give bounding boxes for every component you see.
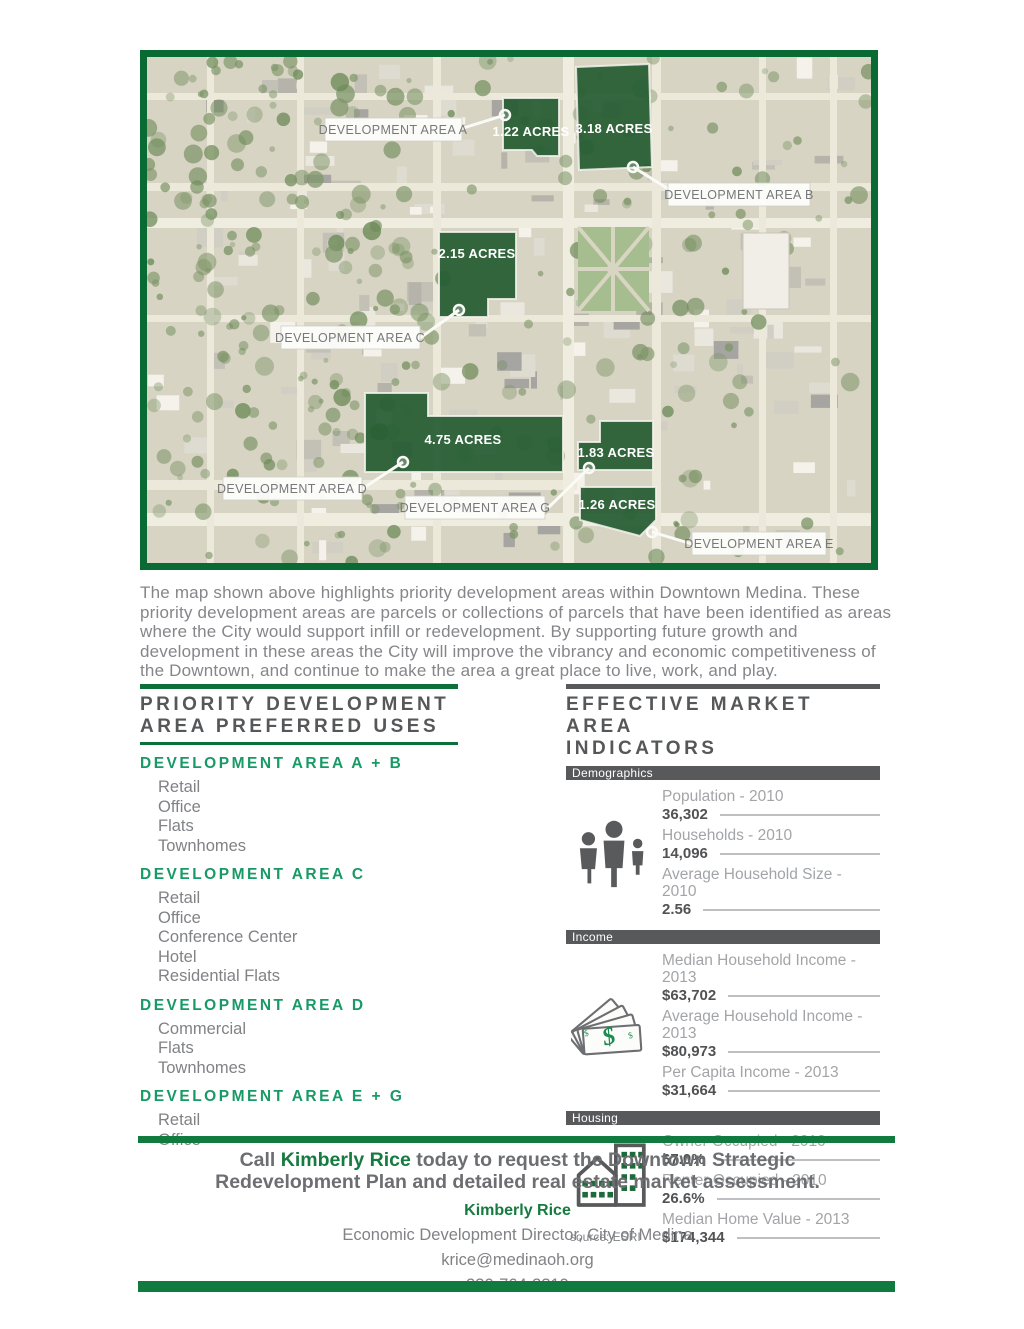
indicator-row: Per Capita Income - 2013 $31,664	[662, 1064, 880, 1099]
callout-area-a: DEVELOPMENT AREA A	[319, 123, 468, 137]
indicator-value: $63,702	[662, 987, 716, 1004]
callout-area-g: DEVELOPMENT AREA G	[400, 501, 551, 515]
callout-area-e: DEVELOPMENT AREA E	[684, 537, 833, 551]
indicator-label: Per Capita Income - 2013	[662, 1064, 880, 1081]
acres-parcel-b: 3.18 ACRES	[576, 121, 653, 136]
left-column-title: PRIORITY DEVELOPMENT AREA PREFERRED USES	[140, 694, 458, 738]
section-bar-demographics: Demographics	[566, 766, 880, 780]
use-item: Flats	[158, 817, 458, 837]
divider	[140, 684, 458, 689]
flyer-page: DEVELOPMENT AREA A DEVELOPMENT AREA B DE…	[0, 0, 1024, 1329]
intro-paragraph: The map shown above highlights priority …	[140, 583, 892, 681]
use-item: Retail	[158, 1111, 458, 1131]
section-heading: DEVELOPMENT AREA A + B	[140, 755, 458, 773]
indicator-value: $31,664	[662, 1082, 716, 1099]
indicators-section-demographics: Demographics	[566, 766, 880, 924]
preferred-uses-column: PRIORITY DEVELOPMENT AREA PREFERRED USES…	[140, 684, 458, 1150]
callout-area-c: DEVELOPMENT AREA C	[275, 331, 425, 345]
use-item: Office	[158, 909, 458, 929]
indicator-row: Population - 2010 36,302	[662, 788, 880, 823]
people-icon	[576, 817, 652, 894]
indicator-label: Average Household Size - 2010	[662, 866, 880, 900]
map-canvas: DEVELOPMENT AREA A DEVELOPMENT AREA B DE…	[147, 57, 871, 563]
indicator-value: $80,973	[662, 1043, 716, 1060]
footer-contact-block: Call Kimberly Rice today to request the …	[140, 1149, 895, 1295]
use-item: Retail	[158, 889, 458, 909]
contact-title: Economic Development Director, City of M…	[140, 1225, 895, 1245]
parcel-b	[576, 64, 652, 170]
contact-name-inline: Kimberly Rice	[281, 1149, 411, 1171]
use-item: Townhomes	[158, 1059, 458, 1079]
indicator-value: 14,096	[662, 845, 708, 862]
indicator-row: Households - 2010 14,096	[662, 827, 880, 862]
acres-parcel-c: 2.15 ACRES	[439, 246, 516, 261]
use-item: Commercial	[158, 1020, 458, 1040]
section-bar-income: Income	[566, 930, 880, 944]
money-icon: $ $ $	[571, 987, 657, 1068]
acres-parcel-g: 1.83 ACRES	[578, 445, 655, 460]
indicator-value: 36,302	[662, 806, 708, 823]
contact-email[interactable]: krice@medinaoh.org	[140, 1250, 895, 1270]
use-item: Residential Flats	[158, 967, 458, 987]
divider	[140, 742, 458, 745]
acres-parcel-d: 4.75 ACRES	[425, 432, 502, 447]
contact-name: Kimberly Rice	[140, 1202, 895, 1220]
use-item: Townhomes	[158, 837, 458, 857]
section-heading: DEVELOPMENT AREA C	[140, 866, 458, 884]
indicator-row: Average Household Size - 2010 2.56	[662, 866, 880, 918]
use-item: Office	[158, 798, 458, 818]
divider	[720, 814, 880, 816]
divider	[703, 909, 880, 911]
indicators-section-income: Income $ $	[566, 930, 880, 1105]
use-item: Conference Center	[158, 928, 458, 948]
indicator-label: Average Household Income - 2013	[662, 1008, 880, 1042]
use-item: Flats	[158, 1039, 458, 1059]
indicator-row: Median Household Income - 2013 $63,702	[662, 952, 880, 1004]
divider	[566, 684, 880, 689]
uses-section-d: DEVELOPMENT AREA D Commercial Flats Town…	[140, 997, 458, 1079]
uses-section-c: DEVELOPMENT AREA C Retail Office Confere…	[140, 866, 458, 987]
callout-area-d: DEVELOPMENT AREA D	[217, 482, 367, 496]
callout-area-b: DEVELOPMENT AREA B	[664, 188, 813, 202]
call-to-action: Call Kimberly Rice today to request the …	[168, 1149, 868, 1193]
divider	[728, 1090, 880, 1092]
use-item: Retail	[158, 778, 458, 798]
acres-parcel-a: 1.22 ACRES	[493, 124, 570, 139]
right-column-title: EFFECTIVE MARKET AREA INDICATORS	[566, 694, 880, 760]
indicator-label: Households - 2010	[662, 827, 880, 844]
indicator-row: Average Household Income - 2013 $80,973	[662, 1008, 880, 1060]
development-areas-map: DEVELOPMENT AREA A DEVELOPMENT AREA B DE…	[140, 50, 878, 570]
section-bar-housing: Housing	[566, 1111, 880, 1125]
divider	[720, 853, 880, 855]
acres-parcel-e: 1.26 ACRES	[579, 497, 656, 512]
indicator-value: 2.56	[662, 901, 691, 918]
use-item: Hotel	[158, 948, 458, 968]
indicator-label: Median Household Income - 2013	[662, 952, 880, 986]
divider	[138, 1136, 895, 1143]
public-square-park	[578, 227, 649, 311]
large-building	[743, 233, 789, 309]
divider	[728, 1051, 880, 1053]
section-heading: DEVELOPMENT AREA D	[140, 997, 458, 1015]
indicator-label: Population - 2010	[662, 788, 880, 805]
divider	[138, 1281, 895, 1292]
section-heading: DEVELOPMENT AREA E + G	[140, 1088, 458, 1106]
uses-section-a-b: DEVELOPMENT AREA A + B Retail Office Fla…	[140, 755, 458, 856]
divider	[728, 995, 880, 997]
